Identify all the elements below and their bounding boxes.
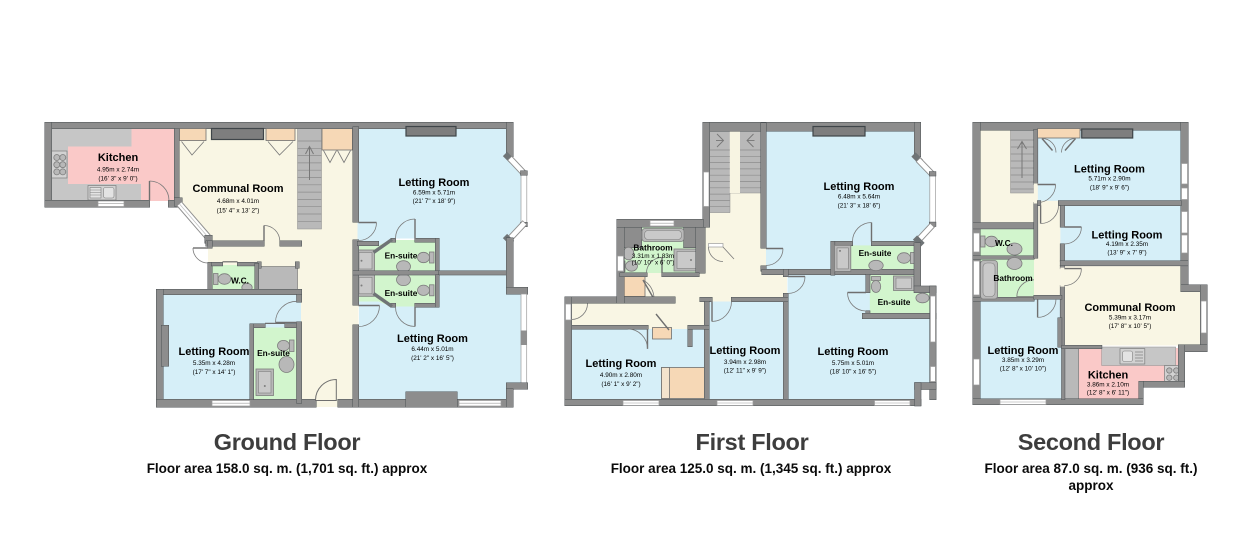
svg-text:(12' 8" x 6' 11"): (12' 8" x 6' 11")	[1087, 390, 1129, 397]
svg-text:(18' 10" x 16' 5"): (18' 10" x 16' 5")	[830, 369, 876, 376]
svg-text:4.95m x 2.74m: 4.95m x 2.74m	[97, 167, 139, 174]
svg-text:Letting Room: Letting Room	[818, 346, 889, 358]
svg-text:En-suite: En-suite	[385, 251, 418, 261]
svg-text:Floor area 158.0 sq. m. (1,701: Floor area 158.0 sq. m. (1,701 sq. ft.) …	[147, 461, 428, 476]
svg-text:(10' 10" x 6' 0"): (10' 10" x 6' 0")	[632, 260, 675, 267]
svg-text:(12' 11" x 9' 9"): (12' 11" x 9' 9")	[724, 368, 766, 375]
svg-text:En-suite: En-suite	[878, 297, 911, 307]
svg-text:Floor area 87.0 sq. m. (936 sq: Floor area 87.0 sq. m. (936 sq. ft.)	[984, 461, 1197, 476]
svg-text:(18' 9" x 9' 6"): (18' 9" x 9' 6")	[1090, 185, 1129, 192]
svg-text:En-suite: En-suite	[385, 288, 418, 298]
svg-text:(21' 2" x 16' 5"): (21' 2" x 16' 5")	[411, 355, 454, 362]
svg-text:4.68m x 4.01m: 4.68m x 4.01m	[217, 198, 259, 205]
svg-text:En-suite: En-suite	[859, 248, 892, 258]
svg-text:(12' 8" x 10' 10"): (12' 8" x 10' 10")	[1000, 366, 1046, 373]
svg-text:3.94m x 2.98m: 3.94m x 2.98m	[724, 359, 766, 366]
svg-text:Letting Room: Letting Room	[397, 333, 468, 345]
svg-text:Floor area 125.0 sq. m. (1,345: Floor area 125.0 sq. m. (1,345 sq. ft.) …	[611, 461, 892, 476]
svg-text:5.39m x 3.17m: 5.39m x 3.17m	[1109, 315, 1151, 322]
svg-text:Letting Room: Letting Room	[179, 346, 250, 358]
svg-text:Kitchen: Kitchen	[1088, 370, 1129, 382]
svg-text:approx: approx	[1068, 478, 1114, 493]
svg-text:Letting Room: Letting Room	[1074, 164, 1145, 176]
svg-text:(16' 1" x 9' 2"): (16' 1" x 9' 2")	[601, 381, 640, 388]
svg-text:Letting Room: Letting Room	[1092, 230, 1163, 242]
svg-text:(17' 7" x 14' 1"): (17' 7" x 14' 1")	[193, 369, 236, 376]
svg-text:Letting Room: Letting Room	[710, 345, 781, 357]
svg-text:3.86m x 2.10m: 3.86m x 2.10m	[1087, 382, 1129, 389]
svg-text:6.59m x 5.71m: 6.59m x 5.71m	[413, 190, 455, 197]
svg-text:Letting Room: Letting Room	[988, 345, 1059, 357]
svg-text:W.C.: W.C.	[995, 238, 1013, 248]
svg-text:Bathroom: Bathroom	[633, 243, 672, 253]
svg-text:Bathroom: Bathroom	[993, 273, 1032, 283]
svg-text:W.C.: W.C.	[231, 276, 249, 286]
svg-text:Communal Room: Communal Room	[1084, 302, 1175, 314]
svg-text:En-suite: En-suite	[257, 348, 290, 358]
svg-text:Kitchen: Kitchen	[98, 152, 139, 164]
svg-text:5.35m x 4.28m: 5.35m x 4.28m	[193, 360, 235, 367]
svg-text:First Floor: First Floor	[696, 429, 809, 455]
svg-text:5.71m x 2.90m: 5.71m x 2.90m	[1088, 176, 1130, 183]
svg-text:(17' 8" x 10' 5"): (17' 8" x 10' 5")	[1109, 323, 1152, 330]
svg-text:6.48m x 5.64m: 6.48m x 5.64m	[838, 194, 880, 201]
svg-text:Letting Room: Letting Room	[586, 358, 657, 370]
svg-text:(13' 9" x 7' 9"): (13' 9" x 7' 9")	[1107, 250, 1146, 257]
svg-text:3.85m x 3.29m: 3.85m x 3.29m	[1002, 357, 1044, 364]
svg-text:6.44m x 5.01m: 6.44m x 5.01m	[411, 346, 453, 353]
svg-text:Ground Floor: Ground Floor	[214, 429, 361, 455]
svg-text:(21' 3" x 18' 6"): (21' 3" x 18' 6")	[838, 203, 881, 210]
svg-text:Letting Room: Letting Room	[824, 181, 895, 193]
svg-text:(16' 3" x 9' 0"): (16' 3" x 9' 0")	[98, 176, 137, 183]
svg-text:Letting Room: Letting Room	[399, 177, 470, 189]
svg-text:(15' 4" x 13' 2"): (15' 4" x 13' 2")	[217, 208, 260, 215]
svg-text:5.75m x 5.01m: 5.75m x 5.01m	[832, 360, 874, 367]
svg-text:Communal Room: Communal Room	[192, 183, 283, 195]
svg-text:4.90m x 2.80m: 4.90m x 2.80m	[600, 372, 642, 379]
svg-text:4.19m x 2.35m: 4.19m x 2.35m	[1106, 241, 1148, 248]
svg-text:(21' 7" x 18' 9"): (21' 7" x 18' 9")	[413, 198, 456, 205]
svg-text:Second Floor: Second Floor	[1018, 429, 1165, 455]
